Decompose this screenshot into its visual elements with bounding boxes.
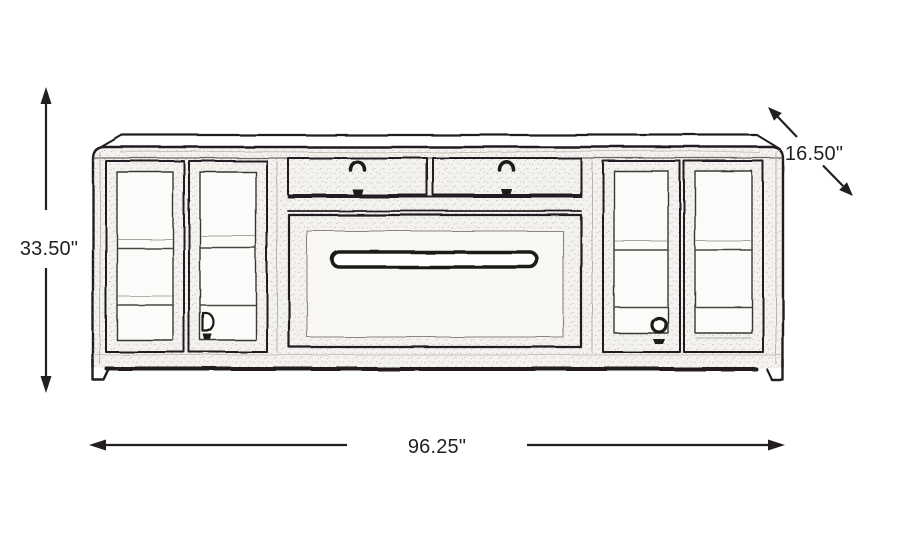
center-media-door xyxy=(289,215,581,347)
right-glass-door-1 xyxy=(603,161,680,352)
cabinet-sketch xyxy=(93,135,783,380)
handle-plate xyxy=(653,339,665,344)
arrowhead-right-icon xyxy=(768,440,785,451)
arrowhead-left-icon xyxy=(89,440,106,451)
right-glass-door-2 xyxy=(684,161,763,352)
left-glass-door-1 xyxy=(106,161,184,352)
d-ring-handle-icon xyxy=(203,313,214,331)
door-handle-slot xyxy=(332,252,537,267)
left-glass-door-2 xyxy=(189,161,267,352)
height-dimension-label: 33.50" xyxy=(20,238,78,260)
width-dimension-label: 96.25" xyxy=(408,436,466,458)
arrowhead-down-icon xyxy=(41,376,52,393)
depth-dimension-label: 16.50" xyxy=(785,143,843,165)
round-handle-icon xyxy=(652,318,666,332)
handle-plate xyxy=(203,334,212,340)
dimension-diagram: 33.50" 16.50" 96.25" xyxy=(0,0,900,550)
